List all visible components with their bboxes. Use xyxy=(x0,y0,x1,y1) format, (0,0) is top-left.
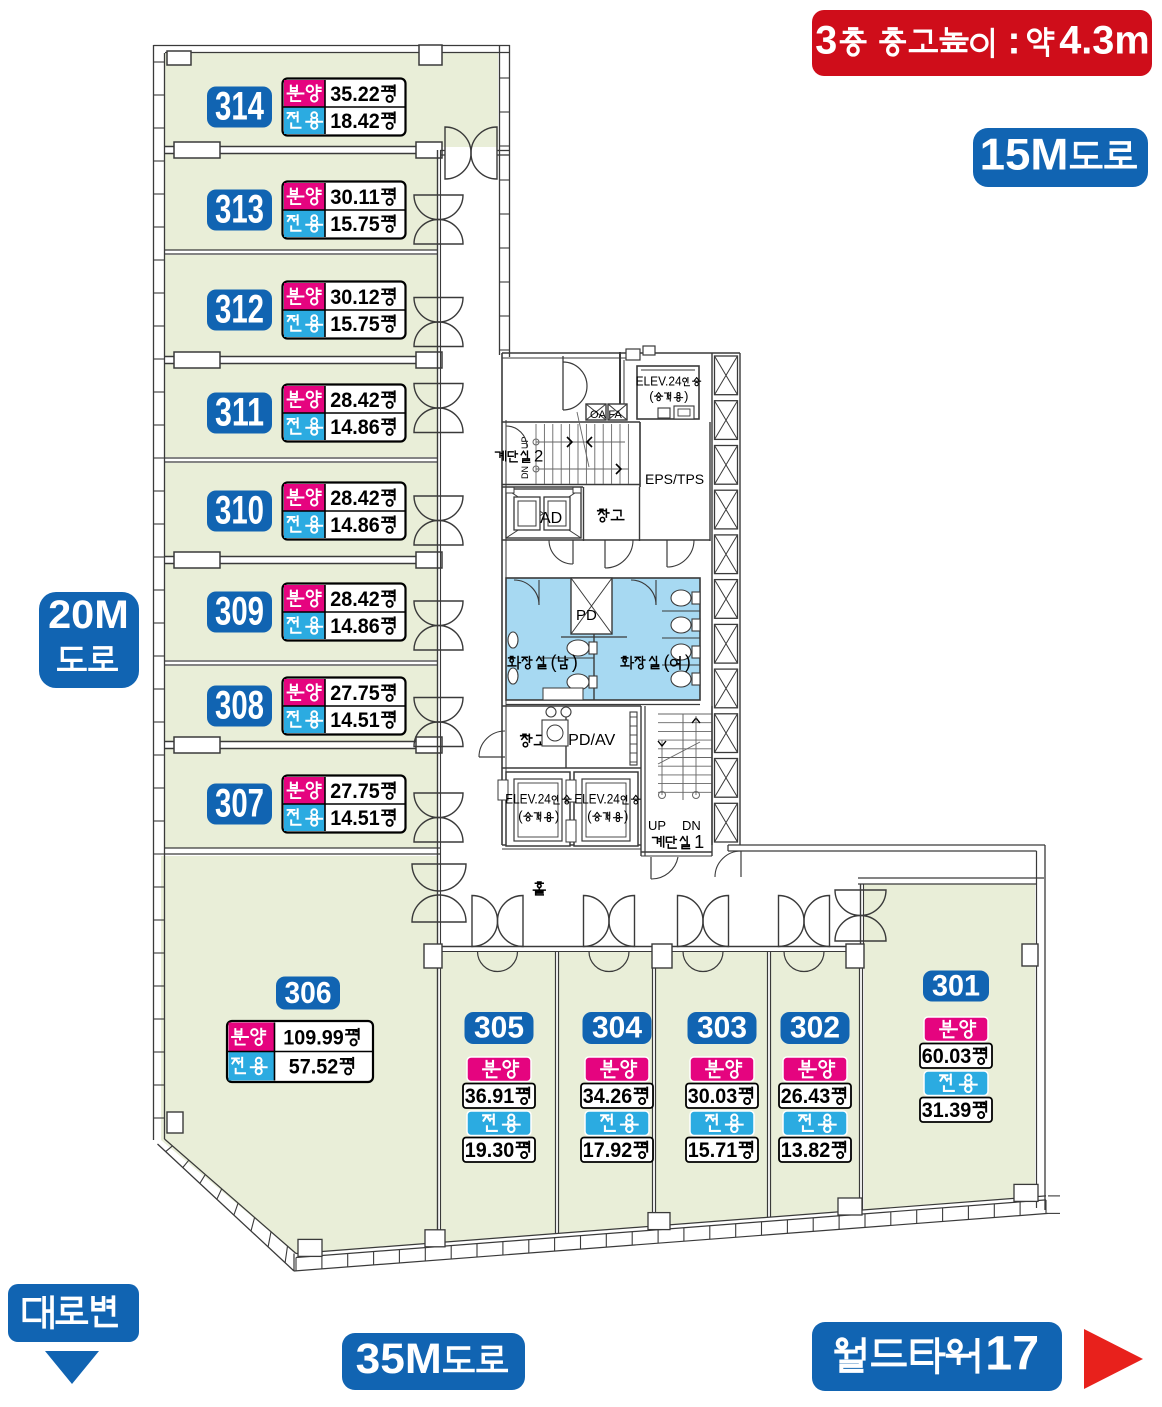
svg-text:(: ( xyxy=(649,388,654,403)
svg-text:17.92: 17.92 xyxy=(583,1139,632,1162)
svg-text:14.86: 14.86 xyxy=(330,615,379,638)
svg-text:(: ( xyxy=(664,652,670,672)
svg-text:27.75: 27.75 xyxy=(330,780,380,803)
svg-text:14.51: 14.51 xyxy=(330,709,380,732)
svg-text:34.26: 34.26 xyxy=(583,1085,632,1108)
svg-text:4.3m: 4.3m xyxy=(1059,19,1149,63)
svg-text:18.42: 18.42 xyxy=(330,110,379,133)
svg-text:310: 310 xyxy=(215,488,264,532)
svg-text:ELEV.24: ELEV.24 xyxy=(574,792,620,807)
svg-text::: : xyxy=(1007,19,1020,63)
svg-text:DN: DN xyxy=(520,466,530,479)
svg-text:EPS/TPS: EPS/TPS xyxy=(645,471,704,487)
svg-text:57.52: 57.52 xyxy=(289,1056,338,1079)
svg-text:): ) xyxy=(685,652,691,672)
svg-text:(: ( xyxy=(518,809,523,824)
svg-text:17: 17 xyxy=(985,1327,1039,1381)
svg-text:308: 308 xyxy=(215,683,264,727)
svg-text:14.51: 14.51 xyxy=(330,807,380,830)
svg-text:309: 309 xyxy=(215,589,264,633)
svg-text:PD: PD xyxy=(576,607,597,624)
svg-text:60.03: 60.03 xyxy=(922,1045,971,1068)
svg-text:301: 301 xyxy=(932,969,980,1002)
svg-text:13.82: 13.82 xyxy=(781,1139,830,1162)
svg-text:DN: DN xyxy=(682,818,701,833)
svg-text:15.71: 15.71 xyxy=(688,1139,738,1162)
svg-text:35.22: 35.22 xyxy=(330,83,379,106)
svg-text:): ) xyxy=(624,809,629,824)
svg-text:14.86: 14.86 xyxy=(330,514,379,537)
svg-text:AD: AD xyxy=(540,510,562,527)
svg-text:): ) xyxy=(684,388,688,403)
svg-text:(: ( xyxy=(587,809,592,824)
svg-text:314: 314 xyxy=(215,84,265,128)
svg-text:30.03: 30.03 xyxy=(688,1085,737,1108)
svg-text:109.99: 109.99 xyxy=(283,1027,343,1050)
svg-text:ELEV.24: ELEV.24 xyxy=(636,373,682,388)
svg-text:313: 313 xyxy=(215,187,264,231)
svg-text:36.91: 36.91 xyxy=(465,1085,515,1108)
svg-text:): ) xyxy=(555,809,560,824)
svg-text:26.43: 26.43 xyxy=(781,1085,830,1108)
svg-text:306: 306 xyxy=(285,975,332,1010)
svg-text:30.12: 30.12 xyxy=(330,286,379,309)
svg-text:15M: 15M xyxy=(980,130,1069,179)
svg-text:2: 2 xyxy=(534,447,543,466)
svg-text:20M: 20M xyxy=(48,592,129,637)
svg-text:14.86: 14.86 xyxy=(330,416,379,439)
svg-text:31.39: 31.39 xyxy=(922,1099,971,1122)
svg-text:28.42: 28.42 xyxy=(330,588,379,611)
svg-text:28.42: 28.42 xyxy=(330,389,379,412)
svg-text:302: 302 xyxy=(790,1010,840,1045)
svg-text:15.75: 15.75 xyxy=(330,313,380,336)
svg-text:OA FA: OA FA xyxy=(590,409,622,421)
svg-text:312: 312 xyxy=(215,287,264,331)
svg-text:35M: 35M xyxy=(356,1335,442,1383)
svg-text:): ) xyxy=(572,652,578,672)
svg-text:311: 311 xyxy=(215,390,264,434)
svg-text:ELEV.24: ELEV.24 xyxy=(505,792,551,807)
svg-text:UP: UP xyxy=(648,818,666,833)
svg-text:28.42: 28.42 xyxy=(330,487,379,510)
svg-text:304: 304 xyxy=(592,1010,643,1045)
svg-text:1: 1 xyxy=(694,832,704,852)
svg-text:307: 307 xyxy=(215,781,264,825)
svg-text:30.11: 30.11 xyxy=(330,186,380,209)
svg-text:PD/AV: PD/AV xyxy=(568,732,616,749)
svg-text:27.75: 27.75 xyxy=(330,682,380,705)
svg-text:19.30: 19.30 xyxy=(465,1139,514,1162)
svg-text:15.75: 15.75 xyxy=(330,213,380,236)
svg-text:305: 305 xyxy=(474,1010,524,1045)
svg-text:3: 3 xyxy=(815,19,837,63)
svg-text:303: 303 xyxy=(697,1010,747,1045)
svg-text:(: ( xyxy=(551,652,557,672)
